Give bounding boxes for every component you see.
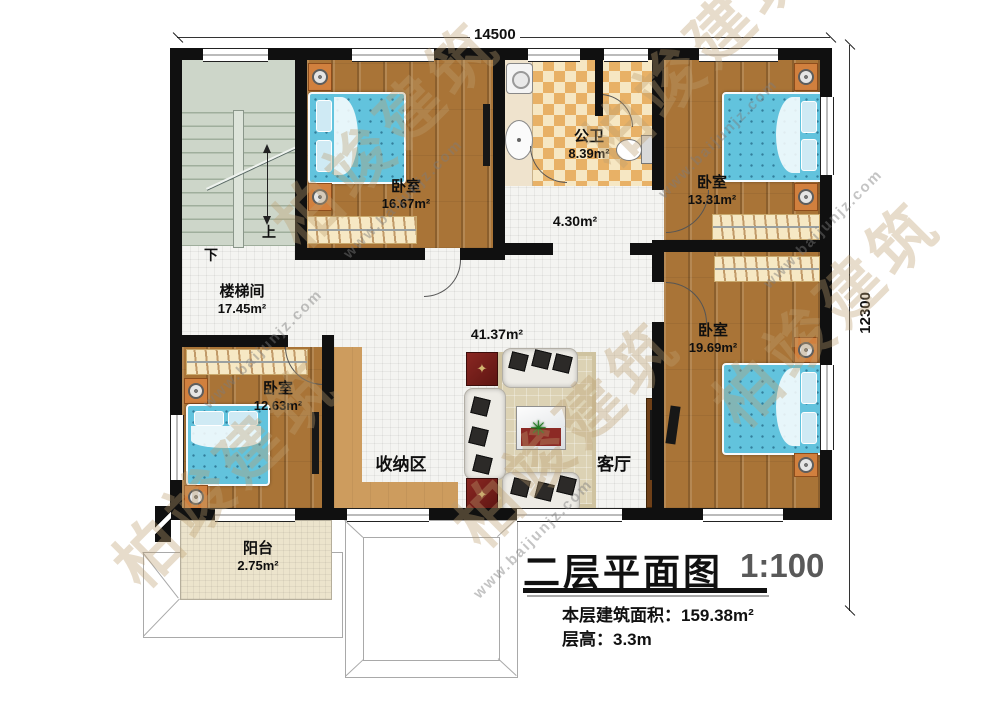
room-name: 卧室 [688, 174, 736, 192]
end-table [466, 478, 498, 512]
wall [622, 508, 703, 520]
nightstand [308, 183, 332, 211]
dimension-line-right [849, 45, 850, 611]
room-name: 公卫 [568, 128, 609, 146]
floor-area-stat: 本层建筑面积：159.38m² [562, 601, 754, 626]
wall [652, 252, 664, 282]
nightstand [184, 378, 208, 404]
stair-arrow-up-icon [263, 144, 271, 153]
pillow [801, 139, 817, 171]
wall [580, 48, 604, 60]
bed [722, 363, 824, 455]
hallway-area-label: 4.30m² [553, 213, 597, 229]
wall [652, 322, 664, 508]
wall [652, 48, 664, 190]
wall [295, 48, 307, 260]
hall-area-label: 41.37m² [471, 326, 523, 342]
nightstand [794, 183, 818, 211]
wall [268, 48, 352, 60]
window [517, 508, 622, 522]
bed-sheet [776, 368, 800, 446]
nightstand [794, 337, 818, 363]
wall [505, 243, 553, 255]
wardrobe [712, 214, 820, 240]
pillow [316, 140, 332, 172]
storage-walkway-horizontal [334, 482, 458, 508]
room-area: 17.45m² [218, 301, 266, 317]
wardrobe [307, 216, 417, 244]
dimension-tick [845, 39, 856, 50]
roof-outline-center-inner [363, 537, 500, 661]
wall [429, 508, 517, 520]
floor-height-stat: 层高：3.3m [562, 625, 652, 650]
bed [722, 92, 824, 182]
room-label-balcony: 阳台 2.75m² [237, 540, 278, 574]
window [820, 97, 834, 175]
wall [820, 175, 832, 365]
room-name: 卧室 [254, 380, 302, 398]
pillow [801, 372, 817, 404]
room-name: 阳台 [237, 540, 278, 558]
living-zone-label: 客厅 [597, 450, 631, 475]
dimension-label-width: 14500 [470, 26, 520, 43]
dimension-tick [845, 605, 856, 616]
room-label-bedroom-bottom-left: 卧室 12.63m² [254, 380, 302, 414]
wall [170, 335, 288, 347]
bed-sheet [334, 97, 358, 175]
title-underline-shadow [527, 595, 769, 597]
bed [308, 92, 406, 184]
tv-panel [483, 104, 490, 166]
title-underline [523, 588, 767, 593]
window [820, 365, 834, 450]
end-table [466, 352, 498, 386]
window [604, 48, 648, 62]
room-label-bathroom: 公卫 8.39m² [568, 128, 609, 162]
nightstand [308, 63, 332, 91]
bed [186, 404, 270, 486]
stair-direction-line [267, 152, 268, 218]
pillow [316, 100, 332, 132]
window [699, 48, 778, 62]
wall [460, 248, 505, 260]
room-area: 13.31m² [688, 192, 736, 208]
room-label-bedroom-mid-right: 卧室 19.69m² [689, 322, 737, 356]
window [170, 415, 184, 480]
room-name: 卧室 [382, 178, 430, 196]
balcony-door [215, 508, 295, 522]
stair-up-label: 上 [262, 222, 276, 242]
plan-scale: 1:100 [740, 547, 824, 585]
wall [493, 48, 505, 248]
window [347, 508, 429, 522]
room-area: 8.39m² [568, 146, 609, 162]
window [528, 48, 580, 62]
bed-sheet [191, 426, 261, 448]
wall [295, 248, 425, 260]
pillow [801, 412, 817, 444]
room-label-bedroom-top-left: 卧室 16.67m² [382, 178, 430, 212]
room-name: 楼梯间 [218, 283, 266, 301]
wall-section-stub [155, 506, 171, 542]
nightstand [794, 453, 818, 477]
wall [820, 48, 832, 97]
window [703, 508, 783, 522]
washing-machine [506, 63, 533, 94]
wall [630, 243, 652, 255]
plant-icon: ✳ [530, 416, 547, 441]
wall [170, 508, 215, 520]
pillow [194, 411, 224, 426]
wall [434, 48, 528, 60]
wall [652, 240, 832, 252]
storage-zone-label: 收纳区 [376, 450, 427, 475]
window [203, 48, 268, 62]
wardrobe [714, 256, 820, 282]
window [352, 48, 434, 62]
toilet-bowl [616, 139, 642, 161]
room-area: 2.75m² [237, 558, 278, 574]
stair-rail [233, 110, 244, 248]
nightstand [184, 485, 208, 509]
wall [322, 335, 334, 508]
room-label-bedroom-top-right: 卧室 13.31m² [688, 174, 736, 208]
room-name: 卧室 [689, 322, 737, 340]
wall [783, 508, 832, 520]
sink [505, 120, 533, 160]
stair-down-label: 下 [204, 245, 218, 265]
tv-panel [312, 412, 319, 474]
nightstand [794, 63, 818, 91]
room-area: 19.69m² [689, 340, 737, 356]
room-area: 12.63m² [254, 398, 302, 414]
wall [170, 48, 182, 415]
wall [595, 60, 603, 116]
floor-plan-canvas: 上 下 [0, 0, 1000, 706]
wall [295, 508, 347, 520]
room-area: 16.67m² [382, 196, 430, 212]
pillow [801, 101, 817, 133]
dimension-label-height: 12300 [853, 292, 878, 334]
bed-sheet [776, 97, 800, 173]
room-label-stairwell: 楼梯间 17.45m² [218, 283, 266, 317]
